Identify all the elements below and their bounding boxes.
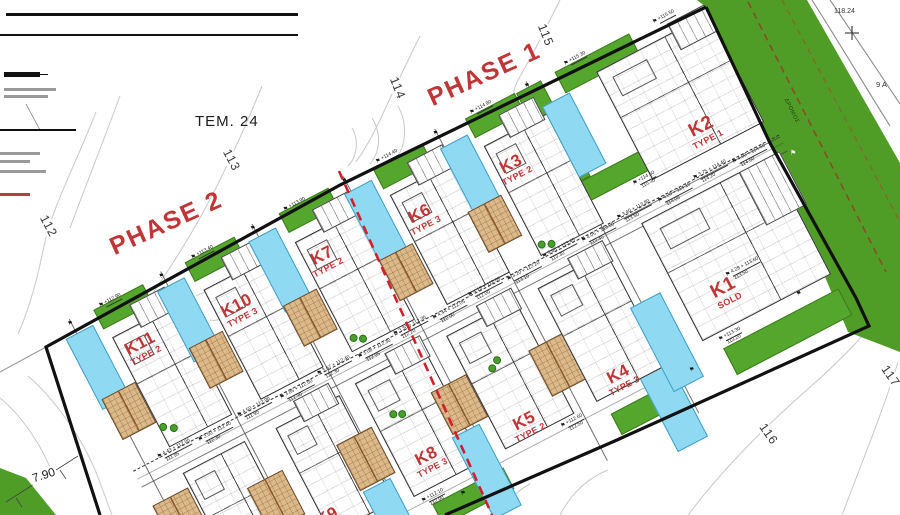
boundary-extension-line [0,347,46,372]
parcel-label: ΤΕΜ. 24 [195,113,259,130]
legend-microtext [0,170,46,173]
legend-microtext [4,95,48,98]
legend-rule [0,129,76,131]
legend-swatch [40,74,48,75]
flag-marker: ⚑ [796,290,804,298]
legend-microtext [4,88,56,91]
legend-swatch [4,72,40,77]
legend-diagonal-line [26,104,40,130]
legend-rule [0,34,298,36]
benchmark-cross-icon [845,26,859,40]
flag-marker: ⚑ [790,150,796,157]
spot-level: ⚑3.20 + 113.20113.10 [506,261,544,289]
legend-microtext [0,152,40,155]
edge-note: 9 Α [876,80,887,89]
site-plan-drawing: ⚑ ⚑ ⚑ ⚑ ⚑ ⚑ ⚑ ⚑ ⚑ ⚑ ⚑4.43 + 112.05111.95… [0,0,900,515]
legend-rule [6,13,298,16]
legend-microtext-red [0,193,30,196]
spot-level: ⚑4.44 + 112.05112.00 [431,300,469,328]
benchmark-label: 118.24 [834,8,855,15]
legend-microtext [0,160,30,163]
